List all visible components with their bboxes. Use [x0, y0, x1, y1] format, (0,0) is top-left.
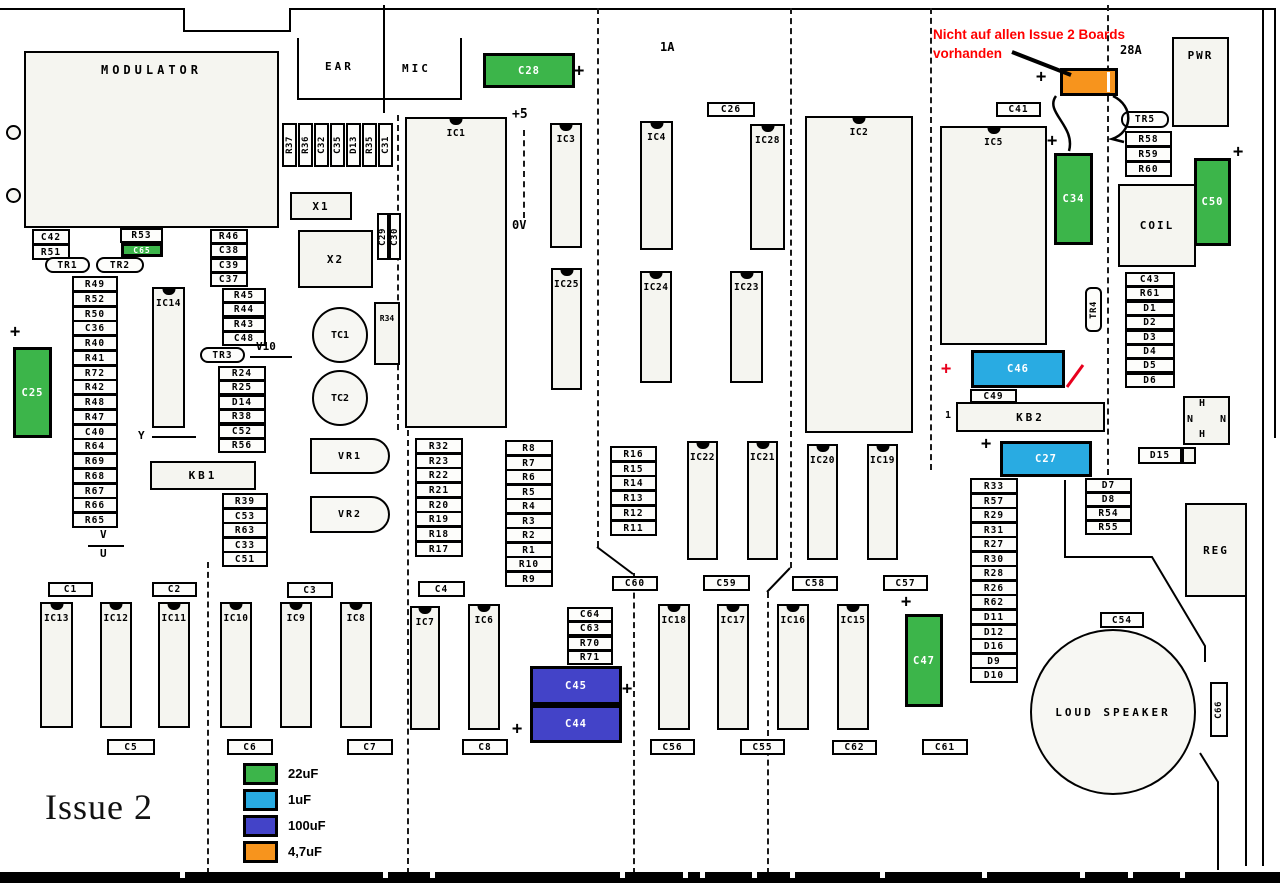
chip-IC1: IC1: [405, 117, 507, 428]
component-R35: R35: [362, 123, 377, 167]
edge-connector-notch-2: [430, 872, 435, 878]
block-COIL-label: COIL: [1140, 219, 1175, 232]
chip-notch: [987, 128, 1000, 134]
component-R61: R61: [1125, 286, 1175, 301]
board-line-9: [1274, 8, 1276, 438]
chip-notch: [816, 446, 829, 452]
component-R69: R69: [72, 453, 118, 469]
chip-IC2: IC2: [805, 116, 913, 433]
component-C57: C57: [883, 575, 928, 591]
component-D11: D11: [970, 609, 1018, 625]
edge-connector-notch-1: [383, 872, 388, 878]
transistor-TR3: TR3: [200, 347, 245, 363]
mounting-hole: [6, 188, 21, 203]
polarity-plus-3: +: [622, 681, 632, 698]
capacitor-unlabeled: [1060, 68, 1118, 96]
legend-label-100uF: 100uF: [288, 818, 326, 833]
polarity-plus-6: +: [1047, 133, 1057, 150]
component-R43: R43: [222, 317, 266, 332]
component-R65: R65: [72, 512, 118, 528]
legend-swatch-1uF: [243, 789, 278, 811]
chip-IC4-label: IC4: [642, 132, 671, 143]
chip-IC10-label: IC10: [222, 613, 250, 624]
chip-IC12: IC12: [100, 602, 132, 728]
component-R32: R32: [415, 438, 463, 454]
chip-IC22: IC22: [687, 441, 718, 560]
component-R22: R22: [415, 467, 463, 483]
chip-IC20-label: IC20: [809, 455, 836, 466]
component-R28: R28: [970, 565, 1018, 581]
board-line-0: [0, 8, 183, 10]
component-R64: R64: [72, 438, 118, 454]
chip-notch: [450, 119, 463, 125]
chip-notch: [761, 126, 774, 132]
component-D2: D2: [1125, 315, 1175, 330]
component-R18: R18: [415, 526, 463, 542]
block-X1-label: X1: [312, 200, 329, 213]
transistor-TR5: TR5: [1121, 111, 1169, 128]
block-MODULATOR: MODULATOR: [24, 51, 279, 228]
component-TR4-label: TR4: [1089, 301, 1099, 319]
component-C63: C63: [567, 621, 613, 636]
capacitor-C27: C27: [1000, 441, 1092, 477]
chip-notch: [162, 289, 175, 295]
block-X2: X2: [298, 230, 373, 288]
chip-IC9-label: IC9: [282, 613, 310, 624]
polarity-plus-0: +: [10, 324, 20, 341]
chip-IC8-label: IC8: [342, 613, 370, 624]
chip-IC7-label: IC7: [412, 617, 438, 628]
edge-connector-notch-5: [700, 872, 705, 878]
chip-IC18-label: IC18: [660, 615, 688, 626]
component-R49: R49: [72, 276, 118, 292]
edge-connector-notch-4: [683, 872, 688, 878]
board-dashline-21: [397, 115, 399, 430]
component-C31: C31: [378, 123, 393, 167]
polarity-plus-7: +: [1233, 144, 1243, 161]
block-KB2: KB2: [956, 402, 1105, 432]
polarity-plus-2: +: [901, 594, 911, 611]
component-C39: C39: [210, 258, 248, 273]
text-H-14: H: [1199, 429, 1205, 440]
component-R6: R6: [505, 469, 553, 485]
component-D8: D8: [1085, 492, 1132, 507]
chip-IC7: IC7: [410, 606, 440, 730]
component-D3: D3: [1125, 330, 1175, 345]
block-REG-label: REG: [1203, 544, 1229, 557]
block-REG: REG: [1185, 503, 1247, 597]
chip-notch: [478, 606, 491, 612]
chip-IC14-label: IC14: [154, 298, 183, 309]
component-R27: R27: [970, 536, 1018, 552]
block-COIL: COIL: [1118, 184, 1196, 267]
component-C56: C56: [650, 739, 695, 755]
edge-connector-notch-0: [180, 872, 185, 878]
circle-tc1: TC1: [312, 307, 368, 363]
component-D13: D13: [346, 123, 361, 167]
component-R8: R8: [505, 440, 553, 456]
component-R70: R70: [567, 636, 613, 651]
chip-IC22-label: IC22: [689, 452, 716, 463]
chip-IC21-label: IC21: [749, 452, 776, 463]
chip-IC28: IC28: [750, 124, 785, 250]
edge-connector-notch-12: [1180, 872, 1185, 878]
component-D14: D14: [218, 395, 266, 410]
component-C51: C51: [222, 551, 268, 567]
component-R48: R48: [72, 394, 118, 410]
issue-title: Issue 2: [45, 786, 153, 828]
text-1-10: 1: [945, 410, 951, 421]
component-C8: C8: [462, 739, 508, 755]
chip-notch: [756, 443, 769, 449]
chip-notch: [419, 608, 432, 614]
component-R2: R2: [505, 527, 553, 543]
board-cut-2: [1200, 753, 1218, 870]
component-C1: C1: [48, 582, 93, 597]
chip-IC11-label: IC11: [160, 613, 188, 624]
capacitor-C65: C65: [121, 243, 163, 257]
chip-notch: [668, 606, 681, 612]
component-C32: C32: [314, 123, 329, 167]
jog-right: [767, 568, 790, 592]
board-line-12: [152, 436, 196, 438]
chip-IC14: IC14: [152, 287, 185, 428]
component-C66: C66: [1210, 682, 1228, 737]
chip-notch: [853, 118, 866, 124]
component-R19: R19: [415, 511, 463, 527]
chip-IC24: IC24: [640, 271, 672, 383]
component-C52: C52: [218, 424, 266, 439]
component-R12: R12: [610, 505, 657, 521]
component-R39: R39: [222, 493, 268, 509]
block-X2-label: X2: [327, 253, 344, 266]
transistor-TR1: TR1: [45, 257, 90, 273]
component-R25: R25: [218, 380, 266, 395]
chip-IC18: IC18: [658, 604, 690, 730]
component-C35: C35: [330, 123, 345, 167]
board-line-10: [1262, 8, 1264, 866]
chip-IC19-label: IC19: [869, 455, 896, 466]
jog-left: [597, 547, 633, 574]
component-R60: R60: [1125, 161, 1172, 177]
component-D5: D5: [1125, 358, 1175, 373]
polarity-plus-5: +: [1036, 69, 1046, 86]
chip-IC16: IC16: [777, 604, 809, 730]
component-D16: D16: [970, 638, 1018, 654]
chip-notch: [847, 606, 860, 612]
component-D1: D1: [1125, 301, 1175, 316]
annotation-line1: Nicht auf allen Issue 2 Boards: [933, 27, 1125, 42]
legend-label-1uF: 1uF: [288, 792, 311, 807]
component-C36: C36: [72, 320, 118, 336]
component-D15: D15: [1138, 447, 1182, 464]
circle-loud-speaker: LOUD SPEAKER: [1030, 629, 1196, 795]
annotation-note: Nicht auf allen Issue 2 Boards vorhanden: [933, 25, 1125, 63]
chip-notch: [350, 604, 363, 610]
board-line-11: [1245, 560, 1247, 866]
circle-tc2: TC2: [312, 370, 368, 426]
polarity-plus-4: +: [512, 721, 522, 738]
component-R37-label: R37: [285, 136, 295, 154]
chip-notch: [740, 273, 753, 279]
chip-IC3-label: IC3: [552, 134, 580, 145]
component-C49: C49: [970, 389, 1017, 403]
component-C55: C55: [740, 739, 785, 755]
chip-IC9: IC9: [280, 602, 312, 728]
board-line-2: [183, 30, 291, 32]
board-dashline-15: [597, 8, 599, 547]
text-0V-3: 0V: [512, 218, 526, 232]
component-C30-label: C30: [390, 228, 400, 246]
text-N-12: N: [1187, 414, 1193, 425]
component-R53: R53: [120, 228, 163, 243]
chip-IC11: IC11: [158, 602, 190, 728]
block-R34-label: R34: [380, 314, 394, 323]
chip-IC6: IC6: [468, 604, 500, 730]
component-VR1: VR1: [310, 438, 390, 474]
component-R62: R62: [970, 594, 1018, 610]
capacitor-C28: C28: [483, 53, 575, 88]
text-5-2: +5: [512, 107, 528, 122]
edge-connector-notch-6: [752, 872, 757, 878]
component-R11: R11: [610, 520, 657, 536]
component-R33: R33: [970, 478, 1018, 494]
board-dashline-22: [407, 430, 409, 874]
component-C59: C59: [703, 575, 750, 591]
component-C5: C5: [107, 739, 155, 755]
component-VR2: VR2: [310, 496, 390, 533]
chip-IC12-label: IC12: [102, 613, 130, 624]
chip-IC13: IC13: [40, 602, 73, 728]
chip-notch: [876, 446, 889, 452]
component-C35-label: C35: [333, 136, 343, 154]
block-KB2-label: KB2: [1016, 411, 1045, 424]
component-C31-label: C31: [381, 136, 391, 154]
chip-IC4: IC4: [640, 121, 673, 250]
chip-IC25: IC25: [551, 268, 582, 390]
board-dashline-24: [523, 130, 525, 218]
text-Y-6: Y: [138, 429, 145, 442]
component-C58: C58: [792, 576, 838, 591]
component-R63: R63: [222, 522, 268, 538]
edge-connector-notch-11: [1128, 872, 1133, 878]
chip-notch: [290, 604, 303, 610]
board-line-4: [289, 8, 1276, 10]
component-C7: C7: [347, 739, 393, 755]
chip-IC16-label: IC16: [779, 615, 807, 626]
legend-label-4,7uF: 4,7uF: [288, 844, 322, 859]
edge-connector-notch-9: [982, 872, 987, 878]
component-C4: C4: [418, 581, 465, 597]
component-R36: R36: [298, 123, 313, 167]
component-R35-label: R35: [365, 136, 375, 154]
component-R4: R4: [505, 498, 553, 514]
component-R38: R38: [218, 409, 266, 424]
board-line-13: [250, 356, 292, 358]
capacitor-C44: C44: [530, 705, 622, 743]
block-MODULATOR-label: MODULATOR: [101, 63, 202, 77]
component-C54: C54: [1100, 612, 1144, 628]
board-dashline-18: [767, 592, 769, 874]
chip-IC8: IC8: [340, 602, 372, 728]
component-C61: C61: [922, 739, 968, 755]
capacitor-C46: C46: [971, 350, 1065, 388]
component-TR4: TR4: [1085, 287, 1102, 332]
chip-IC23: IC23: [730, 271, 763, 383]
component-C29-label: C29: [378, 228, 388, 246]
chip-notch: [560, 125, 573, 131]
component-R24: R24: [218, 366, 266, 381]
component-R44: R44: [222, 302, 266, 317]
legend-label-22uF: 22uF: [288, 766, 318, 781]
edge-connector: [0, 872, 1280, 883]
chip-notch: [727, 606, 740, 612]
chip-notch: [168, 604, 181, 610]
legend-swatch-4,7uF: [243, 841, 278, 863]
component-C6: C6: [227, 739, 273, 755]
polarity-plus-8: +: [981, 436, 991, 453]
edge-connector-notch-3: [620, 872, 625, 878]
chip-notch: [560, 270, 573, 276]
board-line-5: [297, 38, 299, 100]
board-dashline-17: [790, 8, 792, 568]
board-line-3: [289, 8, 291, 32]
component-C38: C38: [210, 243, 248, 258]
component-C42: C42: [32, 229, 70, 245]
chip-IC24-label: IC24: [642, 282, 670, 293]
component-R9: R9: [505, 571, 553, 587]
capacitor-C45: C45: [530, 666, 622, 705]
board-line-8: [383, 5, 385, 113]
polarity-plus-9: +: [941, 361, 951, 378]
component-R46: R46: [210, 229, 248, 244]
capacitor-C47: C47: [905, 614, 943, 707]
block-KB1: KB1: [150, 461, 256, 490]
component-C41: C41: [996, 102, 1041, 117]
chip-notch: [787, 606, 800, 612]
component-R59: R59: [1125, 146, 1172, 162]
text-H-11: H: [1199, 398, 1205, 409]
component-C66-label: C66: [1214, 701, 1224, 719]
text-1A-4: 1A: [660, 40, 674, 54]
component-R40: R40: [72, 335, 118, 351]
chip-IC19: IC19: [867, 444, 898, 560]
board-line-6: [297, 98, 462, 100]
component-R56: R56: [218, 438, 266, 453]
text-N-13: N: [1220, 414, 1226, 425]
block-X1: X1: [290, 192, 352, 220]
chip-IC23-label: IC23: [732, 282, 761, 293]
chip-notch: [650, 273, 663, 279]
component-C29: C29: [377, 213, 389, 260]
block-KB1-label: KB1: [189, 469, 218, 482]
chip-notch: [650, 123, 663, 129]
component-R29: R29: [970, 507, 1018, 523]
text-EAR-0: EAR: [325, 60, 354, 73]
component-R36-label: R36: [301, 136, 311, 154]
component-R66: R66: [72, 497, 118, 513]
red-slash: [1067, 365, 1083, 387]
legend-swatch-22uF: [243, 763, 278, 785]
chip-IC15-label: IC15: [839, 615, 867, 626]
board-dashline-23: [207, 562, 209, 874]
edge-connector-notch-8: [880, 872, 885, 878]
chip-IC25-label: IC25: [553, 279, 580, 290]
block-empty: [1182, 447, 1196, 464]
component-C3: C3: [287, 582, 333, 598]
chip-IC15: IC15: [837, 604, 869, 730]
component-D10: D10: [970, 667, 1018, 683]
chip-notch: [696, 443, 709, 449]
board-dashline-19: [930, 8, 932, 470]
component-C30: C30: [389, 213, 401, 260]
chip-notch: [110, 604, 123, 610]
edge-connector-notch-7: [790, 872, 795, 878]
component-C2: C2: [152, 582, 197, 597]
component-R14: R14: [610, 475, 657, 491]
chip-IC3: IC3: [550, 123, 582, 248]
chip-IC28-label: IC28: [752, 135, 783, 146]
block-PWR-label: PWR: [1188, 49, 1214, 62]
board-line-1: [183, 8, 185, 32]
block-PWR: PWR: [1172, 37, 1229, 127]
polarity-plus-1: +: [574, 63, 584, 80]
chip-IC10: IC10: [220, 602, 252, 728]
chip-IC5-label: IC5: [942, 137, 1045, 148]
component-R42: R42: [72, 379, 118, 395]
chip-IC2-label: IC2: [807, 127, 911, 138]
chip-IC20: IC20: [807, 444, 838, 560]
component-R13: R13: [610, 490, 657, 506]
component-D7: D7: [1085, 478, 1132, 493]
edge-connector-notch-10: [1080, 872, 1085, 878]
component-R16: R16: [610, 446, 657, 462]
component-R41: R41: [72, 350, 118, 366]
text-V10-7: V10: [256, 340, 276, 353]
component-R47: R47: [72, 409, 118, 425]
text-U-9: U: [100, 547, 107, 560]
chip-notch: [230, 604, 243, 610]
capacitor-C25: C25: [13, 347, 52, 438]
legend-swatch-100uF: [243, 815, 278, 837]
component-R37: R37: [282, 123, 297, 167]
chip-IC21: IC21: [747, 441, 778, 560]
polarity-stripe: [1107, 72, 1110, 92]
pcb-layout-diagram: Nicht auf allen Issue 2 Boards vorhanden…: [0, 0, 1280, 883]
component-R54: R54: [1085, 506, 1132, 521]
transistor-TR2: TR2: [96, 257, 144, 273]
component-R21: R21: [415, 482, 463, 498]
chip-IC17: IC17: [717, 604, 749, 730]
component-R55: R55: [1085, 520, 1132, 535]
board-line-7: [460, 38, 462, 100]
block-R34: R34: [374, 302, 400, 365]
component-R52: R52: [72, 291, 118, 307]
component-R68: R68: [72, 468, 118, 484]
component-R10: R10: [505, 556, 553, 572]
component-C64: C64: [567, 607, 613, 622]
component-R58: R58: [1125, 131, 1172, 147]
annotation-line2: vorhanden: [933, 46, 1002, 61]
component-D4: D4: [1125, 344, 1175, 359]
mounting-hole: [6, 125, 21, 140]
component-R45: R45: [222, 288, 266, 303]
component-R17: R17: [415, 541, 463, 557]
component-C60: C60: [612, 576, 658, 591]
chip-IC6-label: IC6: [470, 615, 498, 626]
board-dashline-16: [633, 573, 635, 874]
chip-IC5: IC5: [940, 126, 1047, 345]
